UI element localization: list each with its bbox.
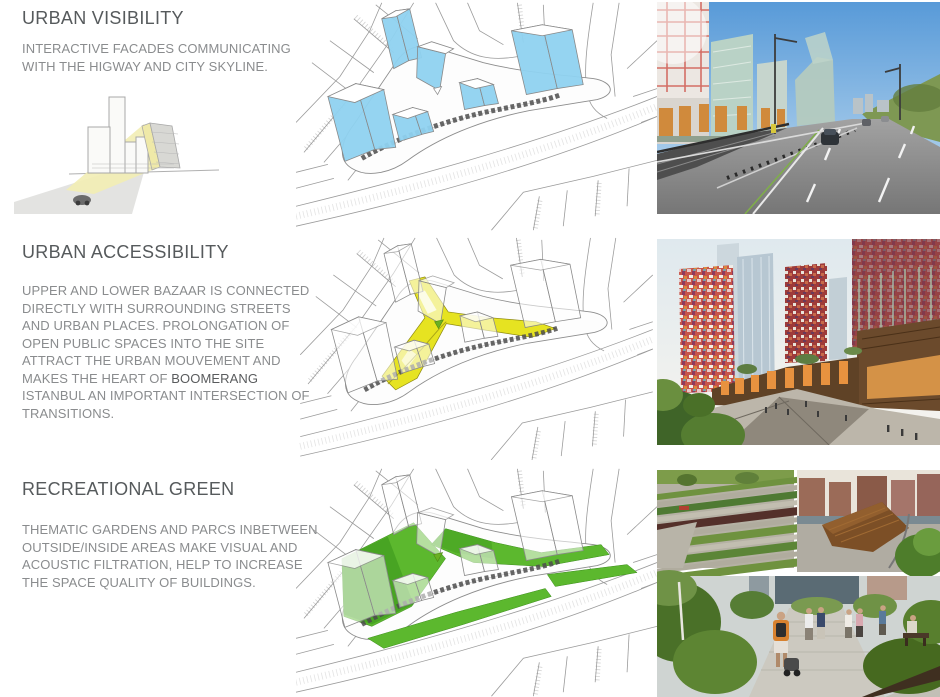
section-title-urban-accessibility: URBAN ACCESSIBILITY [22, 242, 229, 263]
recreational-green-site-diagram [296, 466, 657, 697]
wooden-bench-photo [797, 470, 940, 578]
project-name-emphasis: BOOMERANG [171, 371, 258, 386]
body-text-before: UPPER AND LOWER BAZAAR IS CONNECTED DIRE… [22, 283, 309, 386]
urban-accessibility-site-diagram [296, 236, 657, 460]
section-body-urban-accessibility: UPPER AND LOWER BAZAAR IS CONNECTED DIRE… [22, 282, 314, 422]
recreational-parks-photo-collage [657, 470, 940, 697]
terraced-gardens-photo [657, 470, 810, 584]
section-title-recreational-green: RECREATIONAL GREEN [22, 479, 234, 500]
facade-light-beam-sketch [14, 82, 290, 214]
presentation-board: URBAN VISIBILITY INTERACTIVE FACADES COM… [0, 0, 940, 697]
highline-walkway-photo [657, 570, 940, 697]
section-title-urban-visibility: URBAN VISIBILITY [22, 8, 184, 29]
urban-visibility-site-diagram [296, 0, 657, 231]
section-body-urban-visibility: INTERACTIVE FACADES COMMUNICATING WITH T… [22, 40, 304, 75]
highway-city-skyline-photo [657, 2, 940, 214]
boomerang-istanbul-render-photo [657, 239, 940, 445]
section-body-recreational-green: THEMATIC GARDENS AND PARCS INBETWEEN OUT… [22, 521, 318, 591]
body-text-after: ISTANBUL AN IMPORTANT INTERSECTION OF TR… [22, 388, 310, 421]
